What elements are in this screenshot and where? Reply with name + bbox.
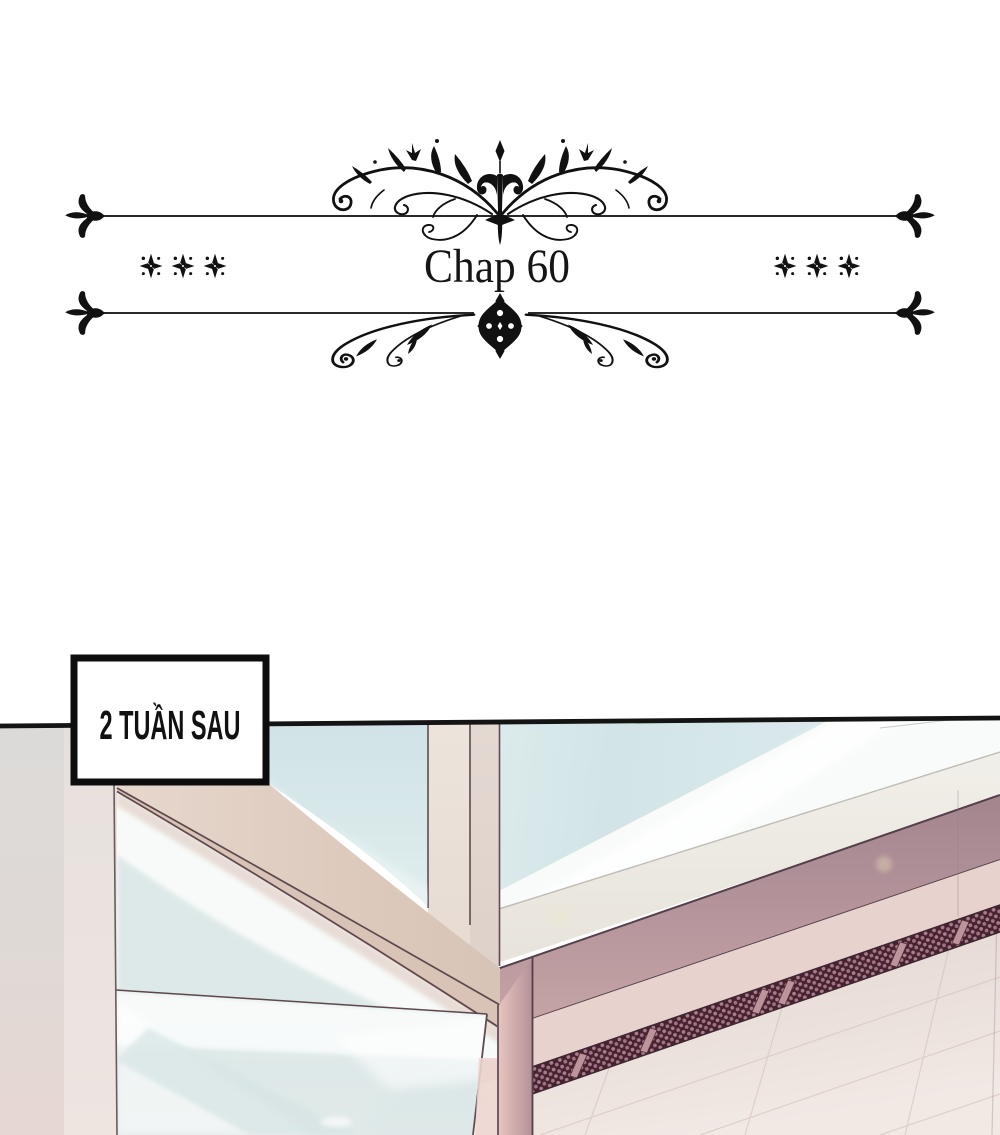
svg-text:2 TUẦN SAU: 2 TUẦN SAU [100,702,241,748]
svg-text:Chap 60: Chap 60 [424,240,570,293]
